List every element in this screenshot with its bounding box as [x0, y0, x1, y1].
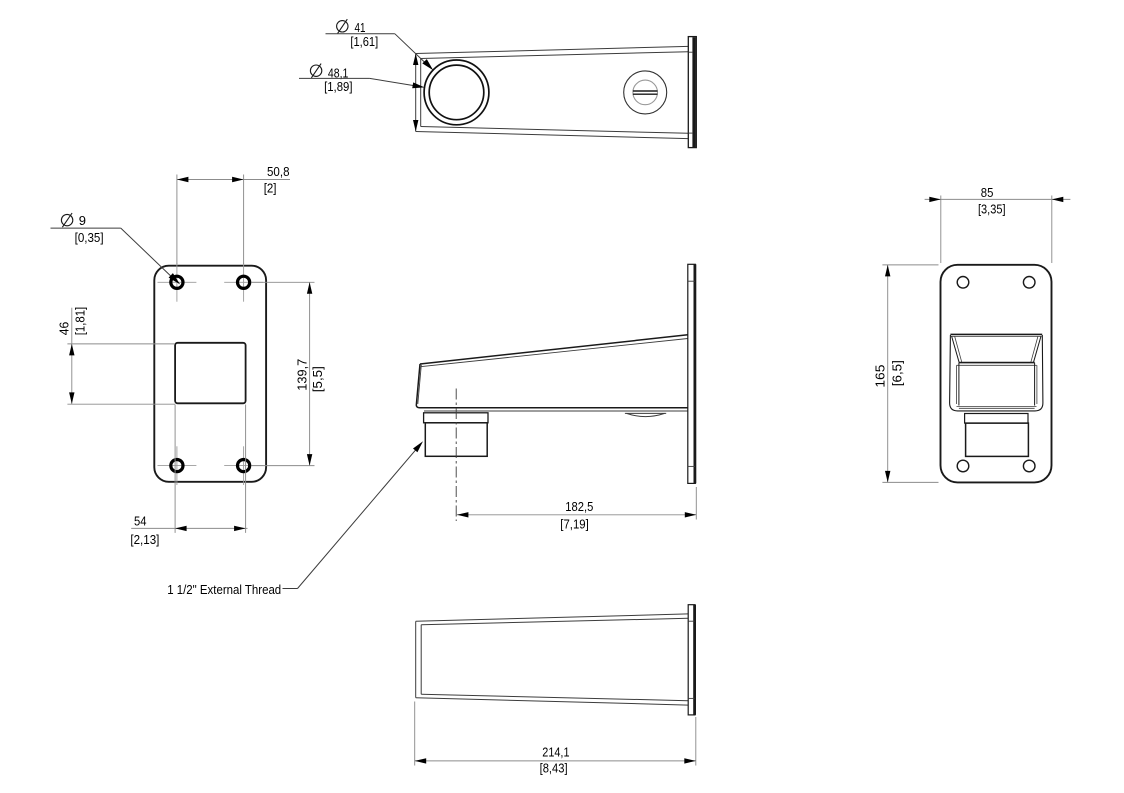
svg-text:182,5: 182,5	[565, 499, 593, 514]
svg-text:9: 9	[79, 213, 86, 228]
svg-text:[6,5]: [6,5]	[889, 360, 904, 386]
svg-text:165: 165	[872, 365, 887, 388]
svg-text:[0,35]: [0,35]	[75, 230, 104, 245]
svg-text:50,8: 50,8	[267, 164, 290, 179]
svg-text:[5,5]: [5,5]	[310, 366, 325, 392]
svg-text:214,1: 214,1	[542, 745, 569, 760]
svg-text:85: 85	[981, 185, 994, 200]
svg-text:41: 41	[355, 20, 366, 35]
svg-text:[8,43]: [8,43]	[540, 761, 568, 776]
svg-text:[1,89]: [1,89]	[324, 79, 352, 94]
svg-text:[1,81]: [1,81]	[72, 307, 87, 336]
svg-text:[2]: [2]	[264, 181, 277, 196]
svg-text:[1,61]: [1,61]	[350, 34, 378, 49]
svg-text:139,7: 139,7	[294, 359, 309, 391]
svg-text:1 1/2" External Thread: 1 1/2" External Thread	[167, 582, 281, 597]
svg-text:46: 46	[57, 322, 72, 336]
svg-text:[3,35]: [3,35]	[978, 202, 1006, 217]
svg-text:[7,19]: [7,19]	[560, 517, 589, 532]
svg-text:[2,13]: [2,13]	[130, 532, 159, 547]
svg-text:54: 54	[134, 513, 147, 528]
